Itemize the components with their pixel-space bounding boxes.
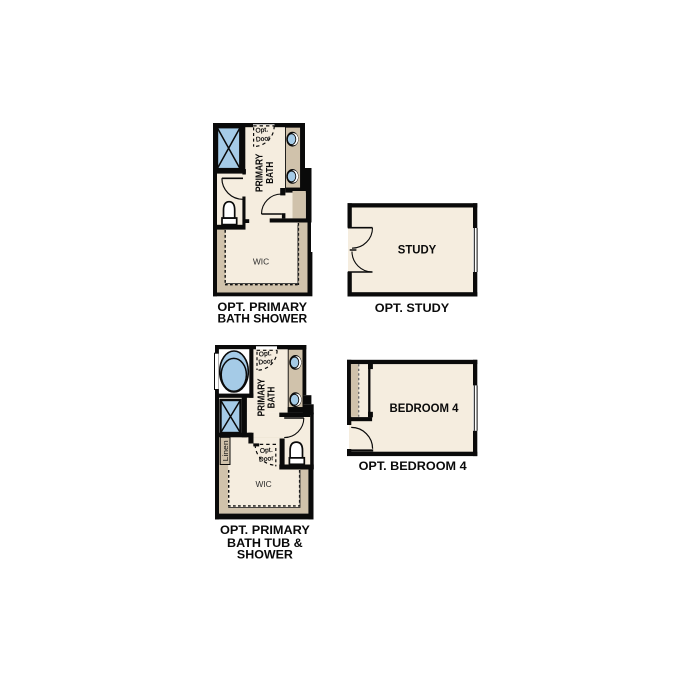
- svg-text:BATH: BATH: [267, 387, 278, 409]
- svg-text:BEDROOM 4: BEDROOM 4: [390, 403, 460, 415]
- svg-text:WIC: WIC: [255, 479, 271, 489]
- svg-text:OPT. STUDY: OPT. STUDY: [375, 302, 450, 315]
- svg-text:STUDY: STUDY: [398, 245, 437, 257]
- svg-text:SHOWER: SHOWER: [237, 549, 294, 562]
- svg-text:OPT. BEDROOM 4: OPT. BEDROOM 4: [359, 460, 468, 473]
- svg-text:Opt.: Opt.: [260, 447, 274, 455]
- svg-text:Linen: Linen: [221, 440, 230, 461]
- svg-text:WIC: WIC: [253, 257, 269, 267]
- svg-text:BATH: BATH: [265, 162, 276, 184]
- svg-text:OPT. PRIMARY: OPT. PRIMARY: [220, 524, 310, 537]
- svg-text:Opt.: Opt.: [259, 350, 273, 358]
- svg-text:BATH SHOWER: BATH SHOWER: [218, 313, 308, 326]
- svg-text:Opt.: Opt.: [255, 126, 269, 134]
